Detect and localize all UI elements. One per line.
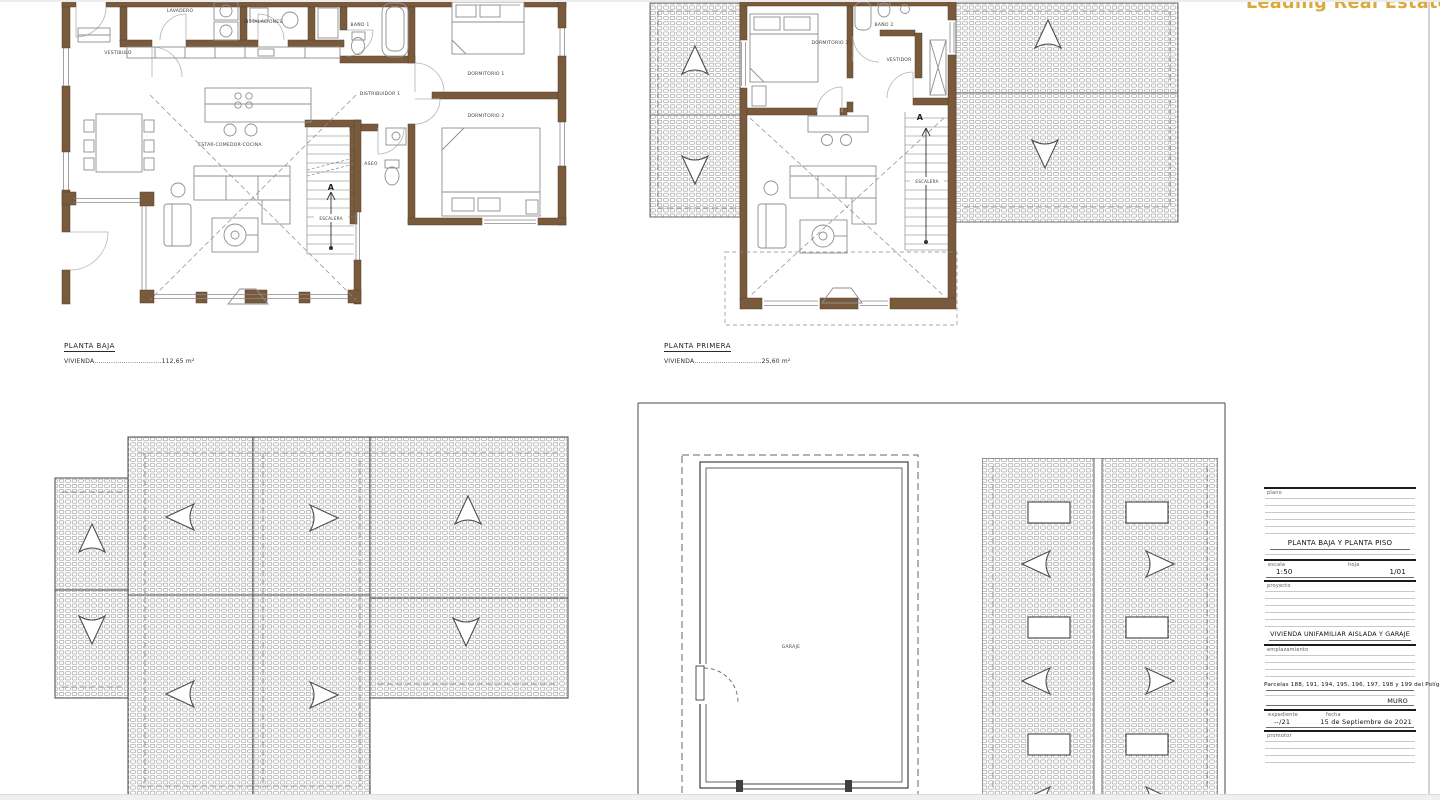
escala-value: 1:50 [1276,568,1293,576]
room-label-garaje: GARAJE [782,644,801,650]
promotor-label: promotor [1267,733,1292,739]
first-floor-area: VIVIENDA................................… [664,358,791,365]
fecha-value: 15 de Septiembre de 2021 [1320,718,1412,726]
room-label-dormitorio3: DORMITORIO 3 [811,40,848,46]
hoja-value: 1/01 [1389,568,1406,576]
sheet-edge-top [0,0,1440,2]
room-label-vestibulo: VESTIBULO [104,50,132,56]
garage-side-door [696,666,704,700]
room-label-aseo: ASEO [364,161,378,167]
room-label-distribuidor: DISTRIBUIDOR 1 [360,91,401,97]
roof-panel [253,437,370,795]
roof-panel [128,437,253,795]
stair-direction-letter: A [328,183,335,192]
first-floor-ceiling-lines [725,118,957,325]
ground-floor-title-text: PLANTA BAJA [64,342,115,352]
first-floor-title-text: PLANTA PRIMERA [664,342,731,352]
garage-floor-plan: GARAJE [682,455,918,796]
ground-floor-plan: LAVADERO INSTALACIONES VESTIBULO ESTAR-C… [62,0,566,304]
room-label-dormitorio2: DORMITORIO 2 [467,113,504,119]
room-label-vestidor: VESTIDOR [886,57,912,63]
hoja-label: hoja [1348,562,1359,568]
garage-inner-wall [706,468,902,782]
stair-direction-letter: A [917,113,924,122]
room-label-bano2: BAÑO 2 [875,21,894,28]
area-label: VIVIENDA [64,358,94,365]
ground-floor-furniture [78,2,540,304]
area-value: 25,60 m² [762,358,791,365]
drawing-sheet: LAVADERO INSTALACIONES VESTIBULO ESTAR-C… [0,0,1440,800]
room-label-escalera-p1: ESCALERA [915,179,938,184]
plano-value: PLANTA BAJA Y PLANTA PISO [1264,539,1416,547]
garage-roof-plan [982,458,1218,800]
garage-roof-ridge [1094,458,1102,795]
skylight [1126,502,1168,523]
skylight [1028,502,1070,523]
first-floor-doors [817,36,913,112]
emplazamiento-label: emplazamiento [1267,647,1308,653]
area-label: VIVIENDA [664,358,694,365]
municipio-value: MURO [1264,697,1408,705]
title-block: plano PLANTA BAJA Y PLANTA PISO escala h… [1264,487,1416,765]
area-leader-dots: ................................ [94,358,161,365]
emplazamiento-value: Parcelas 188, 191, 194, 195, 196, 197, 1… [1264,682,1416,688]
room-label-dormitorio1: DORMITORIO 1 [467,71,504,77]
room-label-escalera: ESCALERA [319,216,342,221]
room-label-instalaciones: INSTALACIONES [243,19,282,25]
first-floor-plan: DORMITORIO 3 BAÑO 2 VESTIDOR ESCALERA A [650,0,1178,325]
skylight [1028,734,1070,755]
area-leader-dots: ................................ [694,358,761,365]
plano-label: plano [1267,490,1282,496]
roof-plan [55,437,568,795]
skylight [1126,734,1168,755]
first-floor-title: PLANTA PRIMERA [664,342,731,352]
ground-floor-title: PLANTA BAJA [64,342,115,352]
cad-drawing: LAVADERO INSTALACIONES VESTIBULO ESTAR-C… [0,0,1440,800]
proyecto-value: VIVIENDA UNIFAMILIAR AISLADA Y GARAJE [1264,631,1416,638]
roof-right-upper [956,3,1178,93]
roof-right-lower [956,93,1178,222]
room-label-estar: ESTAR-COMEDOR-COCINA [198,142,262,148]
skylight [1028,617,1070,638]
skylight [1126,617,1168,638]
ground-floor-ceiling-lines [150,95,356,300]
expediente-value: --/21 [1274,718,1290,726]
roof-panel [370,598,568,698]
ground-floor-area: VIVIENDA................................… [64,358,195,365]
room-label-lavadero: LAVADERO [167,8,194,14]
sheet-edge-bottom [0,794,1440,800]
room-label-bano1: BAÑO 1 [351,21,370,28]
first-floor-walls [740,0,956,309]
proyecto-label: proyecto [1267,583,1291,589]
area-value: 112,65 m² [162,358,195,365]
ground-floor-walls [62,0,566,304]
